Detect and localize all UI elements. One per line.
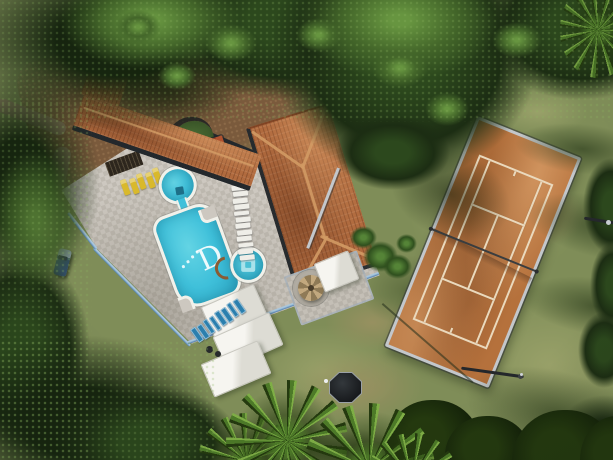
bush xyxy=(383,254,412,279)
round-table xyxy=(215,351,221,357)
lounger xyxy=(235,223,250,229)
light-pole-cap xyxy=(520,373,523,376)
lounger xyxy=(234,210,249,216)
bush xyxy=(396,234,417,253)
parasol-center xyxy=(308,285,314,291)
center-mark xyxy=(513,171,517,176)
tree-canopy-tongue xyxy=(335,115,450,190)
lounger xyxy=(237,235,252,241)
lounger xyxy=(235,216,250,222)
kids-pool-step xyxy=(175,186,184,195)
trampoline xyxy=(330,373,361,402)
sunlit-crown xyxy=(425,92,469,126)
sunlit-crown xyxy=(115,10,161,44)
pool-logo-dots xyxy=(181,265,184,268)
lounger xyxy=(232,191,247,197)
lounger xyxy=(234,204,249,210)
sunlit-crown xyxy=(296,18,342,52)
lounger xyxy=(240,254,255,260)
light-pole-head xyxy=(606,220,611,225)
ball xyxy=(324,379,328,383)
tree-column-sunlit xyxy=(0,150,80,290)
round-table xyxy=(206,346,213,353)
sunlit-crown xyxy=(492,22,542,58)
tree-crown xyxy=(578,312,613,388)
sunlit-crown xyxy=(158,62,196,90)
lounger xyxy=(233,197,248,203)
lounger xyxy=(238,248,253,254)
lounger xyxy=(238,242,253,248)
center-mark xyxy=(449,328,453,333)
aerial-photo: D xyxy=(0,0,613,460)
sunlit-crown xyxy=(205,24,257,62)
lounger xyxy=(237,229,252,235)
sunlit-crown xyxy=(372,48,428,88)
